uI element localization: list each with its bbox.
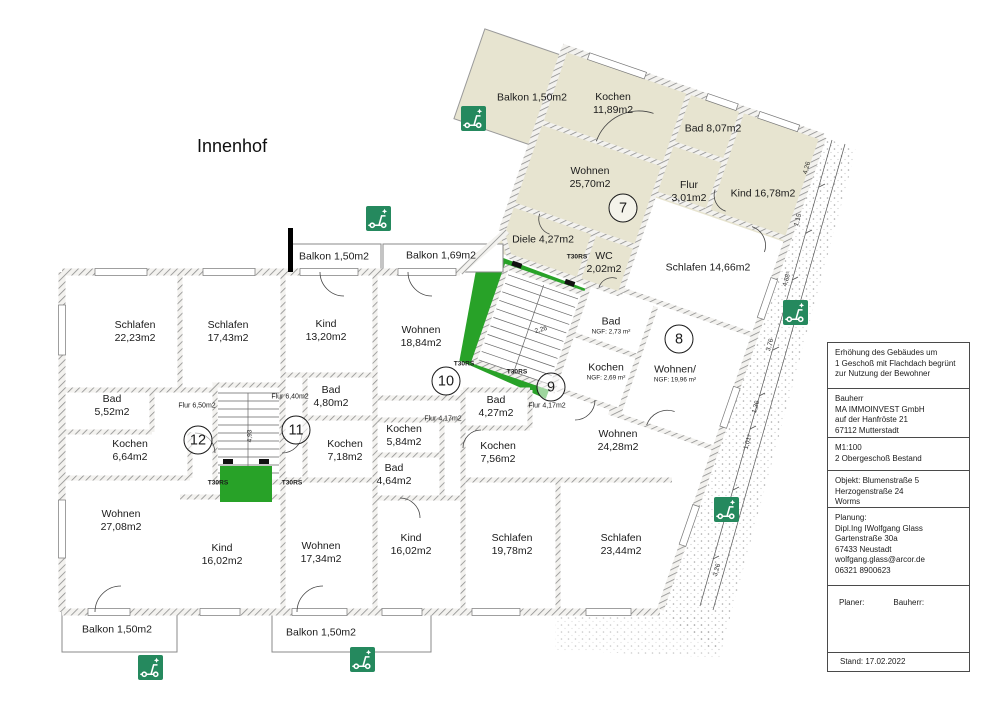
room-name: Balkon 1,50m2 xyxy=(299,250,369,262)
room-area: 19,78m2 xyxy=(492,545,533,558)
scooter-icon xyxy=(714,497,739,522)
room-name: Kochen xyxy=(327,438,363,450)
apartment-number-circle: 10 xyxy=(432,367,461,396)
title-block-line: M1:100 xyxy=(835,443,963,454)
title-block-section: Planung:Dipl.Ing IWolfgang GlassGartenst… xyxy=(828,508,969,586)
fire-door-label: T30RS xyxy=(454,361,475,368)
room-area-ngf: NGF: 2,69 m² xyxy=(587,375,626,383)
room-label: Kochen11,89m2 xyxy=(593,91,633,117)
room-name: Bad 8,07m2 xyxy=(685,122,742,134)
room-name: Wohnen xyxy=(102,508,141,520)
room-area: 13,20m2 xyxy=(306,331,347,344)
title-block-line: 06321 8900623 xyxy=(835,566,963,577)
room-label: Flur 4,17m2 xyxy=(528,403,565,412)
room-name: Wohnen xyxy=(302,540,341,552)
title-block-line: 1 Geschoß mit Flachdach begrünt xyxy=(835,359,963,370)
room-area: 24,28m2 xyxy=(598,441,639,454)
room-label: Flur 4,17m2 xyxy=(424,416,461,425)
title-block-line: Worms xyxy=(835,497,963,508)
dimension-text: 2,26 xyxy=(534,325,548,335)
room-name: Bad xyxy=(322,384,341,396)
room-name: Schlafen xyxy=(115,319,156,331)
room-label: Flur 6,50m2 xyxy=(178,403,215,412)
dimension-text: 1,36 xyxy=(751,400,761,414)
room-label: Balkon 1,50m2 xyxy=(286,626,356,639)
room-name: Schlafen xyxy=(208,319,249,331)
title-block-line: auf der Hanfröste 21 xyxy=(835,415,963,426)
room-name: Wohnen xyxy=(571,165,610,177)
room-label: WC2,02m2 xyxy=(586,250,621,276)
room-name: Balkon 1,50m2 xyxy=(82,623,152,635)
room-label: Flur3,01m2 xyxy=(671,179,706,205)
room-area: 4,80m2 xyxy=(313,397,348,410)
fire-door-label: T30RS xyxy=(507,369,528,376)
room-name: Kochen xyxy=(386,423,422,435)
floor-plan: Innenhof Schlafen22,23m2Schlafen17,43m2K… xyxy=(0,0,1000,707)
room-label: Balkon 1,50m2 xyxy=(299,250,369,263)
room-label: Diele 4,27m2 xyxy=(512,233,574,246)
room-area: 3,01m2 xyxy=(671,192,706,205)
room-area: 5,84m2 xyxy=(386,436,422,449)
apartment-number-circle: 12 xyxy=(184,426,213,455)
room-name: Diele 4,27m2 xyxy=(512,233,574,245)
apartment-number-circle: 7 xyxy=(609,194,638,223)
room-name: Kochen xyxy=(595,91,631,103)
room-name: Kind xyxy=(400,532,421,544)
room-area: 22,23m2 xyxy=(115,332,156,345)
room-name: Wohnen/ xyxy=(654,364,696,376)
title-block-line: Stand: 17.02.2022 xyxy=(840,657,963,668)
room-label: Kind16,02m2 xyxy=(202,542,243,568)
room-name: Balkon 1,50m2 xyxy=(286,626,356,638)
room-label: Balkon 1,50m2 xyxy=(497,91,567,104)
room-area: 17,43m2 xyxy=(208,332,249,345)
title-block-line: Dipl.Ing IWolfgang Glass xyxy=(835,524,963,535)
room-label: KochenNGF: 2,69 m² xyxy=(587,362,626,383)
scooter-sign-icon xyxy=(783,300,808,325)
room-label: Bad4,64m2 xyxy=(376,462,411,488)
room-label: Balkon 1,50m2 xyxy=(82,623,152,636)
room-label: Kind16,02m2 xyxy=(391,532,432,558)
title-block-section: M1:1002 Obergeschoß Bestand xyxy=(828,438,969,471)
room-area: 27,08m2 xyxy=(101,521,142,534)
room-label: BadNGF: 2,73 m² xyxy=(592,316,631,337)
room-name: WC xyxy=(595,250,613,262)
apartment-number-circle: 9 xyxy=(537,373,566,402)
apartment-number-circle: 11 xyxy=(282,416,311,445)
room-name: Kind xyxy=(315,318,336,330)
room-label: Wohnen25,70m2 xyxy=(570,165,611,191)
room-name: Bad xyxy=(103,393,122,405)
room-label: Schlafen 14,66m2 xyxy=(666,261,751,274)
scooter-icon xyxy=(138,655,163,680)
title-block-line: Herzogenstraße 24 xyxy=(835,487,963,498)
room-area: 11,89m2 xyxy=(593,104,633,117)
title-block-line: 67112 Mutterstadt xyxy=(835,426,963,437)
title-block-line: Gartenstraße 30a xyxy=(835,534,963,545)
title-block-line: Bauherr xyxy=(835,394,963,405)
room-area: 7,56m2 xyxy=(480,453,516,466)
room-name: Bad xyxy=(385,462,404,474)
apartment-number-circle: 8 xyxy=(665,325,694,354)
room-label: Schlafen17,43m2 xyxy=(208,319,249,345)
room-name: Kochen xyxy=(480,440,516,452)
title-block-line: MA IMMOINVEST GmbH xyxy=(835,405,963,416)
title-block-section: Stand: 17.02.2022 xyxy=(828,653,969,672)
room-label: Balkon 1,69m2 xyxy=(406,249,476,262)
room-area: 7,18m2 xyxy=(327,451,363,464)
room-label: Wohnen18,84m2 xyxy=(401,324,442,350)
dimension-text: 4,93 xyxy=(247,430,254,443)
title-block-line: Planer: xyxy=(839,598,864,609)
title-block-line: Planung: xyxy=(835,513,963,524)
room-name: Kind xyxy=(211,542,232,554)
room-name: Flur xyxy=(680,179,698,191)
scooter-icon xyxy=(366,206,391,231)
scooter-sign-icon xyxy=(461,106,486,131)
innenhof-label: Innenhof xyxy=(197,136,267,157)
dimension-text: 3,76 xyxy=(765,338,775,352)
room-label: Bad4,27m2 xyxy=(478,394,513,420)
room-name: Balkon 1,50m2 xyxy=(497,91,567,103)
room-label: Wohnen24,28m2 xyxy=(598,428,639,454)
scooter-icon xyxy=(350,647,375,672)
room-name: Bad xyxy=(487,394,506,406)
room-area: 4,27m2 xyxy=(478,407,513,420)
title-block-line: wolfgang.glass@arcor.de xyxy=(835,555,963,566)
fire-door-label: T30RS xyxy=(208,480,229,487)
title-block-section: Objekt: Blumenstraße 5Herzogenstraße 24W… xyxy=(828,471,969,508)
room-name: Wohnen xyxy=(599,428,638,440)
title-block-section: BauherrMA IMMOINVEST GmbHauf der Hanfrös… xyxy=(828,389,969,438)
room-name: Schlafen xyxy=(601,532,642,544)
dimension-text: 3,26 xyxy=(712,563,722,577)
dimension-text: 4,26 xyxy=(802,161,812,175)
room-label: Schlafen23,44m2 xyxy=(601,532,642,558)
room-name: Flur 4,17m2 xyxy=(528,403,565,410)
room-area: 18,84m2 xyxy=(401,337,442,350)
room-name: Balkon 1,69m2 xyxy=(406,249,476,261)
room-name: Wohnen xyxy=(402,324,441,336)
title-block-line: Objekt: Blumenstraße 5 xyxy=(835,476,963,487)
room-area-ngf: NGF: 2,73 m² xyxy=(592,329,631,337)
room-name: Flur 4,17m2 xyxy=(424,416,461,423)
room-label: Kochen7,18m2 xyxy=(327,438,363,464)
title-block-section: Planer:Bauherr: xyxy=(828,586,969,653)
room-name: Kochen xyxy=(112,438,148,450)
room-label: Wohnen17,34m2 xyxy=(301,540,342,566)
room-label: Kochen6,64m2 xyxy=(112,438,148,464)
room-area: 17,34m2 xyxy=(301,553,342,566)
room-name: Bad xyxy=(602,316,621,328)
scooter-sign-icon xyxy=(138,655,163,680)
room-label: Bad5,52m2 xyxy=(94,393,129,419)
scooter-sign-icon xyxy=(714,497,739,522)
room-label: Flur 6,40m2 xyxy=(271,394,308,403)
scooter-sign-icon xyxy=(366,206,391,231)
room-area: 5,52m2 xyxy=(94,406,129,419)
room-label: Bad 8,07m2 xyxy=(685,122,742,135)
room-area: 4,64m2 xyxy=(376,475,411,488)
room-label: Kind 16,78m2 xyxy=(731,187,796,200)
room-area-ngf: NGF: 19,96 m² xyxy=(654,377,696,385)
title-block-line: Erhöhung des Gebäudes um xyxy=(835,348,963,359)
dimension-text: 1,15 xyxy=(793,213,803,227)
room-name: Flur 6,40m2 xyxy=(271,394,308,401)
room-label: Wohnen/NGF: 19,96 m² xyxy=(654,364,696,385)
scooter-sign-icon xyxy=(350,647,375,672)
room-area: 25,70m2 xyxy=(570,178,611,191)
fire-door-label: T30RS xyxy=(282,480,303,487)
title-block-line: 67433 Neustadt xyxy=(835,545,963,556)
room-label: Schlafen19,78m2 xyxy=(492,532,533,558)
room-label: Kochen7,56m2 xyxy=(480,440,516,466)
scooter-icon xyxy=(461,106,486,131)
room-name: Flur 6,50m2 xyxy=(178,403,215,410)
title-block-line: zur Nutzung der Bewohner xyxy=(835,369,963,380)
room-label: Kind13,20m2 xyxy=(306,318,347,344)
dimension-text: 1,01⁵ xyxy=(743,434,754,451)
room-area: 2,02m2 xyxy=(586,263,621,276)
title-block: Erhöhung des Gebäudes um1 Geschoß mit Fl… xyxy=(827,342,970,672)
title-block-section: Erhöhung des Gebäudes um1 Geschoß mit Fl… xyxy=(828,343,969,389)
room-name: Kind 16,78m2 xyxy=(731,187,796,199)
room-area: 23,44m2 xyxy=(601,545,642,558)
room-label: Kochen5,84m2 xyxy=(386,423,422,449)
scooter-icon xyxy=(783,300,808,325)
room-label: Wohnen27,08m2 xyxy=(101,508,142,534)
room-label: Bad4,80m2 xyxy=(313,384,348,410)
room-name: Schlafen xyxy=(492,532,533,544)
room-area: 6,64m2 xyxy=(112,451,148,464)
title-block-line: 2 Obergeschoß Bestand xyxy=(835,454,963,465)
fire-door-label: T30RS xyxy=(567,254,588,261)
room-label: Schlafen22,23m2 xyxy=(115,319,156,345)
dimension-text: 4,88⁵ xyxy=(782,271,793,288)
room-area: 16,02m2 xyxy=(202,555,243,568)
title-block-line: Bauherr: xyxy=(893,598,924,609)
room-name: Kochen xyxy=(588,362,624,374)
room-area: 16,02m2 xyxy=(391,545,432,558)
room-name: Schlafen 14,66m2 xyxy=(666,261,751,273)
